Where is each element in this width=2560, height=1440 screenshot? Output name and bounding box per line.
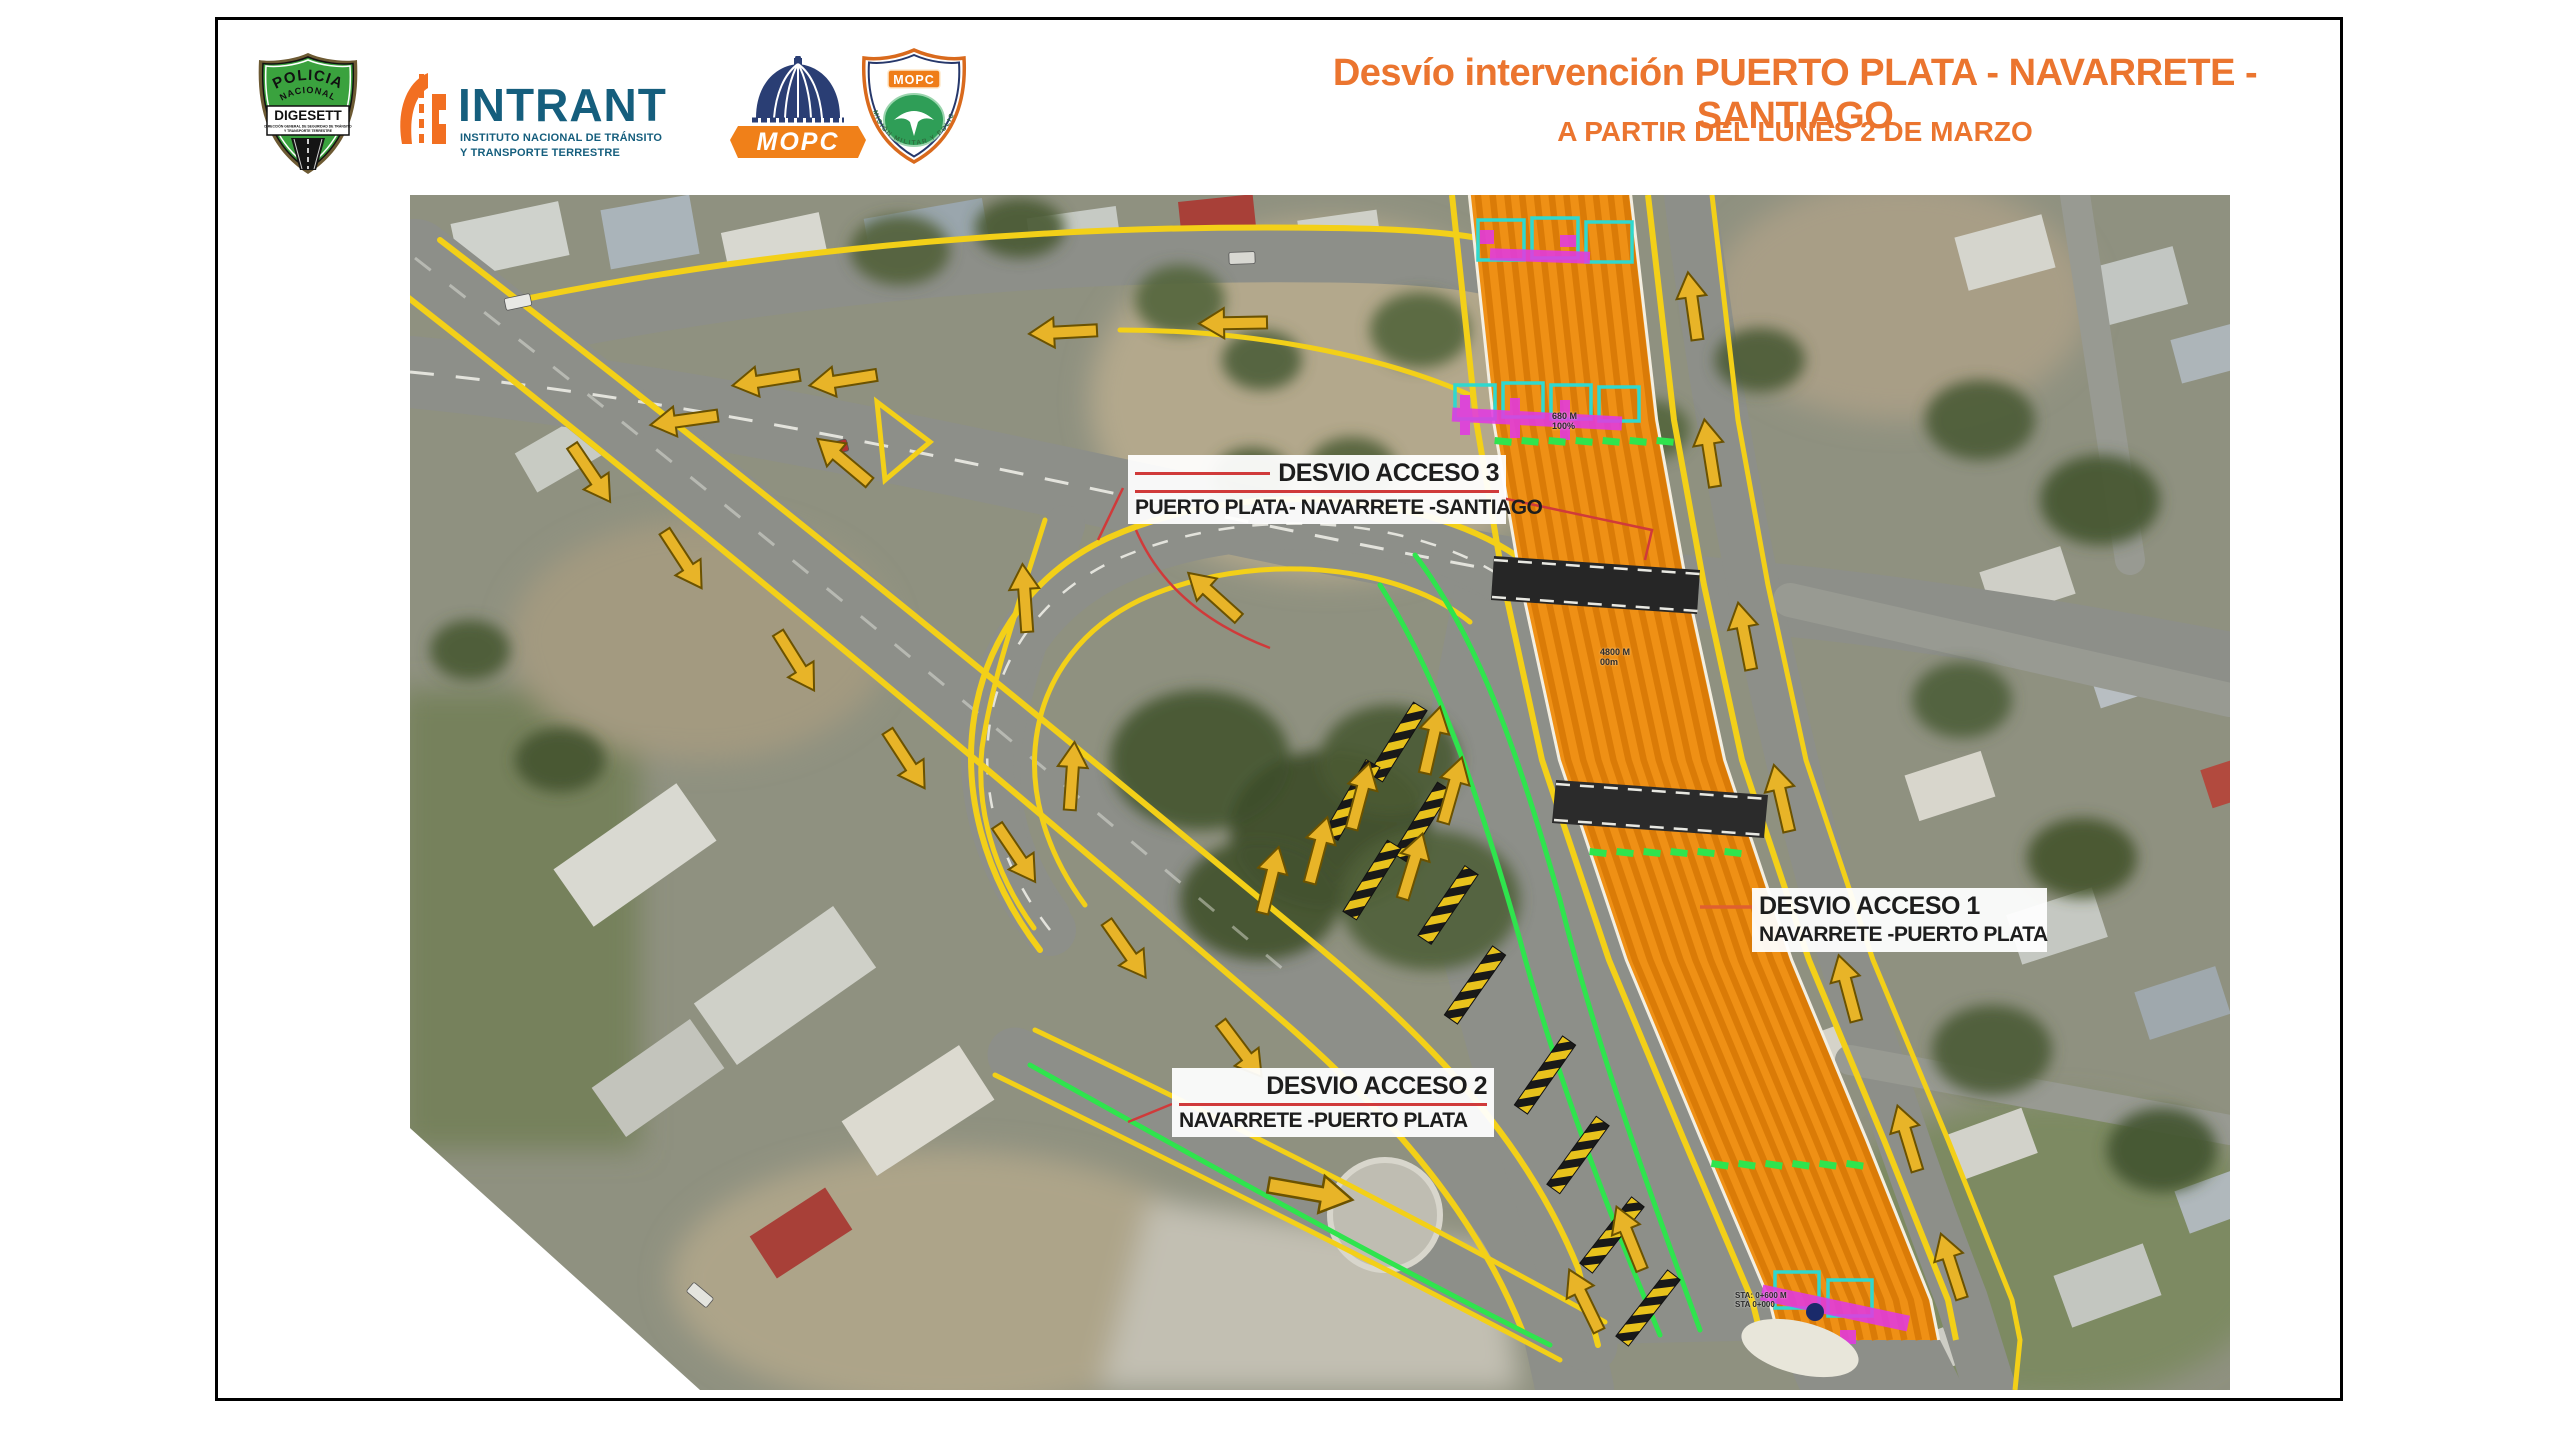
tree-cluster (1370, 292, 1470, 368)
callout-desvio-acceso-1: DESVIO ACCESO 1 NAVARRETE -PUERTO PLATA (1752, 888, 2047, 952)
tree-cluster (430, 620, 510, 680)
callout-route: NAVARRETE -PUERTO PLATA (1179, 1108, 1487, 1134)
callout-desvio-acceso-2: DESVIO ACCESO 2 NAVARRETE -PUERTO PLATA (1172, 1068, 1494, 1137)
callout-route: PUERTO PLATA- NAVARRETE -SANTIAGO (1135, 495, 1499, 521)
annotation-station-top: 680 M100% (1552, 412, 1577, 432)
tree-cluster (975, 198, 1065, 258)
digesett-sub1: DIRECCIÓN GENERAL DE SEGURIDAD DE TRÁNSI… (264, 124, 352, 129)
red-underline (1179, 1103, 1487, 1106)
digesett-band: DIGESETT (274, 108, 342, 123)
tree-cluster (1912, 662, 2012, 738)
annotation-station-mid: 4800 M00m (1600, 648, 1630, 668)
callout-title: DESVIO ACCESO 3 (1278, 458, 1499, 489)
callout-title: DESVIO ACCESO 1 (1759, 891, 2040, 922)
callout-desvio-acceso-3: DESVIO ACCESO 3 PUERTO PLATA- NAVARRETE … (1128, 455, 1506, 524)
intrant-tagline-2: Y TRANSPORTE TERRESTRE (460, 147, 760, 159)
leader-line-red (1135, 472, 1270, 475)
intrant-wordmark: INTRANT (458, 78, 667, 132)
vehicle (1229, 252, 1255, 265)
annotation-station-bottom: STA: 0+600 MSTA 0+000 (1735, 1292, 1787, 1310)
page: DESVIO ACCESO 3 PUERTO PLATA- NAVARRETE … (0, 0, 2560, 1440)
mopc-shield-logo: MOPC COMISIÓN MILITAR Y POLICIAL (858, 46, 970, 168)
mopc-logo: MOPC (728, 56, 868, 164)
mopc-shield-wordmark: MOPC (893, 73, 935, 87)
tree-cluster (2040, 455, 2160, 545)
tree-cluster (2107, 1108, 2217, 1192)
red-underline (1135, 490, 1499, 493)
tree-cluster (1932, 1005, 2052, 1095)
callout-title: DESVIO ACCESO 2 (1266, 1071, 1487, 1102)
aerial-map (0, 0, 2560, 1440)
digesett-logo: POLICIA NACIONAL DIGESETT DIRECCIÓN GENE… (253, 50, 363, 178)
tree-cluster (2027, 818, 2137, 898)
tree-cluster (1925, 380, 2035, 460)
callout-route: NAVARRETE -PUERTO PLATA (1759, 922, 2040, 948)
page-subtitle: A PARTIR DEL LUNES 2 DE MARZO (1250, 116, 2340, 148)
tree-cluster (515, 728, 605, 792)
mopc-wordmark: MOPC (757, 128, 840, 156)
digesett-sub2: Y TRANSPORTE TERRESTRE (284, 129, 333, 133)
intrant-icon (392, 68, 452, 148)
intrant-tagline-1: INSTITUTO NACIONAL DE TRÁNSITO (460, 132, 760, 144)
